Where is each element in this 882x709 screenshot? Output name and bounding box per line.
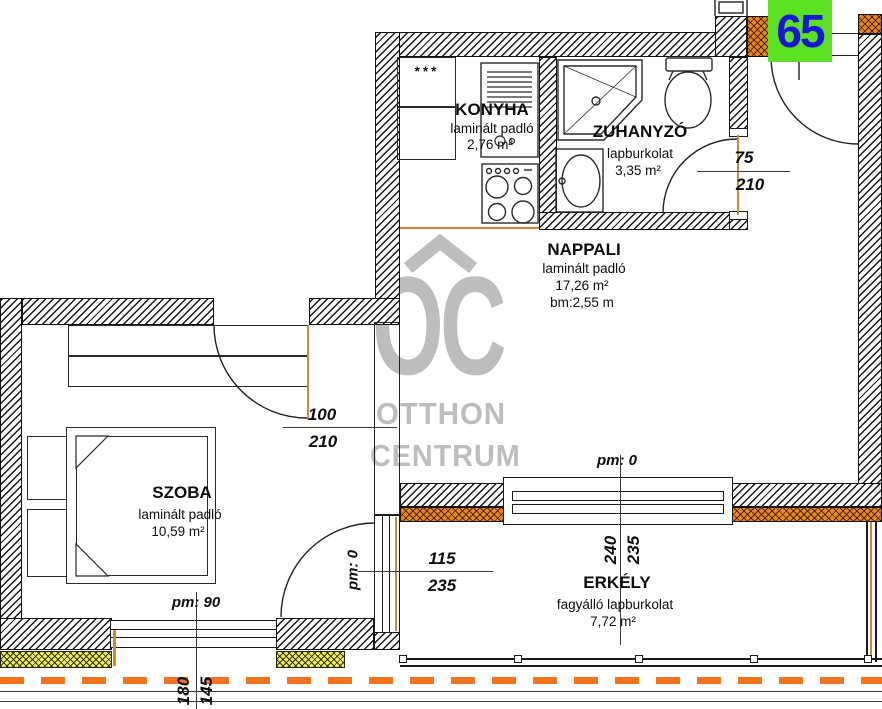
room-label-zuhanyzo: ZUHANYZÓ [593,122,687,142]
railing-post [635,655,643,663]
dim-szoba-door-width: 100 [308,405,336,425]
dim-nappali-balcony-width: 240 [601,536,621,564]
dim-nappali-balcony-height: 235 [624,536,644,564]
railing-post [514,655,522,663]
balcony-edge-line [870,522,872,658]
railing-post [864,655,872,663]
dim-szoba-window-width: 180 [174,677,194,705]
entry-door-arc [771,57,858,144]
terrace-dashed-line [0,677,882,684]
room-floor-szoba: laminált padló [138,507,221,522]
toilet [665,58,712,128]
room-floor-nappali: laminált padló [542,261,625,276]
dim-line-hall-door [358,571,493,572]
nappali-balcony-sliding-door [503,477,733,525]
floor-plan: OC OTTHON CENTRUM [0,0,882,709]
room-label-szoba: SZOBA [152,483,212,503]
room-area-szoba: 10,59 m² [151,524,204,539]
unit-number-badge: 65 [768,0,832,62]
dim-bath-door-width: 75 [735,148,754,168]
parapet-szoba-window: pm: 90 [172,594,220,611]
wash-basin [556,149,603,212]
room-area-zuhanyzo: 3,35 m² [615,163,661,178]
kitchen-counter-stars: *** [415,64,440,79]
railing-post [750,655,758,663]
unit-number: 65 [776,4,823,58]
room-label-erkely: ERKÉLY [583,573,650,593]
room-floor-zuhanyzo: lapburkolat [607,146,673,161]
kitchen-opening-line [400,227,539,229]
plan-linework [0,0,882,709]
bath-door-arc [663,139,737,213]
room-label-konyha: KONYHA [455,100,529,120]
room-label-nappali: NAPPALI [547,240,620,260]
room-area-konyha: 2,76 m² [467,137,513,152]
railing-post [399,655,407,663]
szoba-door-arc [214,325,307,418]
parapet-hall-door: pm: 0 [345,550,362,590]
szoba-window [110,620,277,648]
dim-szoba-door-height: 210 [309,432,337,452]
stove [482,164,538,223]
dim-bath-door-height: 210 [736,175,764,195]
bed-pillows [76,436,108,576]
room-area-nappali: 17,26 m² [555,278,608,293]
dim-hall-door-width: 115 [428,549,455,569]
dim-line-bath-door [697,171,790,172]
room-floor-erkely: fagyálló lapburkolat [557,597,673,612]
hall-balcony-door-line [395,517,397,631]
room-area-erkely: 7,72 m² [590,614,636,629]
dim-szoba-window-height: 145 [197,677,217,705]
room-height-nappali: bm:2,55 m [550,295,614,310]
room-floor-konyha: laminált padló [450,121,533,136]
dim-line-szoba-door [283,427,397,428]
window-jamb-strip [113,630,116,666]
parapet-nappali-balcony: pm: 0 [597,452,637,469]
dim-hall-door-height: 235 [428,576,456,596]
